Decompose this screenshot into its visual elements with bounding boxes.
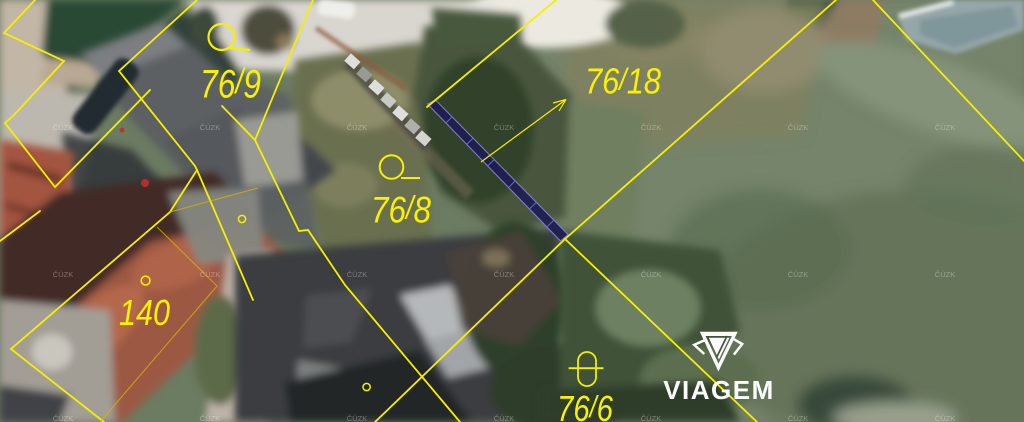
svg-text:ČÚZK: ČÚZK bbox=[788, 123, 808, 132]
svg-text:ČÚZK: ČÚZK bbox=[935, 270, 955, 279]
svg-text:ČÚZK: ČÚZK bbox=[347, 414, 367, 422]
svg-text:ČÚZK: ČÚZK bbox=[53, 123, 73, 132]
svg-text:ČÚZK: ČÚZK bbox=[641, 123, 661, 132]
svg-text:ČÚZK: ČÚZK bbox=[788, 414, 808, 422]
svg-text:ČÚZK: ČÚZK bbox=[53, 414, 73, 422]
svg-text:ČÚZK: ČÚZK bbox=[347, 123, 367, 132]
svg-text:ČÚZK: ČÚZK bbox=[53, 270, 73, 279]
svg-text:ČÚZK: ČÚZK bbox=[347, 270, 367, 279]
svg-text:76/8: 76/8 bbox=[371, 190, 431, 231]
svg-text:ČÚZK: ČÚZK bbox=[200, 414, 220, 422]
svg-text:ČÚZK: ČÚZK bbox=[494, 414, 514, 422]
svg-text:ČÚZK: ČÚZK bbox=[200, 123, 220, 132]
svg-text:76/9: 76/9 bbox=[200, 62, 261, 107]
svg-text:ČÚZK: ČÚZK bbox=[788, 270, 808, 279]
svg-text:76/6: 76/6 bbox=[557, 388, 614, 422]
svg-text:ČÚZK: ČÚZK bbox=[935, 123, 955, 132]
svg-text:ČÚZK: ČÚZK bbox=[494, 123, 514, 132]
svg-text:VIAGEM: VIAGEM bbox=[663, 375, 775, 405]
svg-text:ČÚZK: ČÚZK bbox=[641, 270, 661, 279]
svg-text:ČÚZK: ČÚZK bbox=[935, 414, 955, 422]
svg-text:ČÚZK: ČÚZK bbox=[200, 270, 220, 279]
svg-text:ČÚZK: ČÚZK bbox=[494, 270, 514, 279]
svg-text:ČÚZK: ČÚZK bbox=[641, 414, 661, 422]
svg-text:140: 140 bbox=[119, 292, 170, 333]
svg-text:76/18: 76/18 bbox=[585, 61, 661, 102]
